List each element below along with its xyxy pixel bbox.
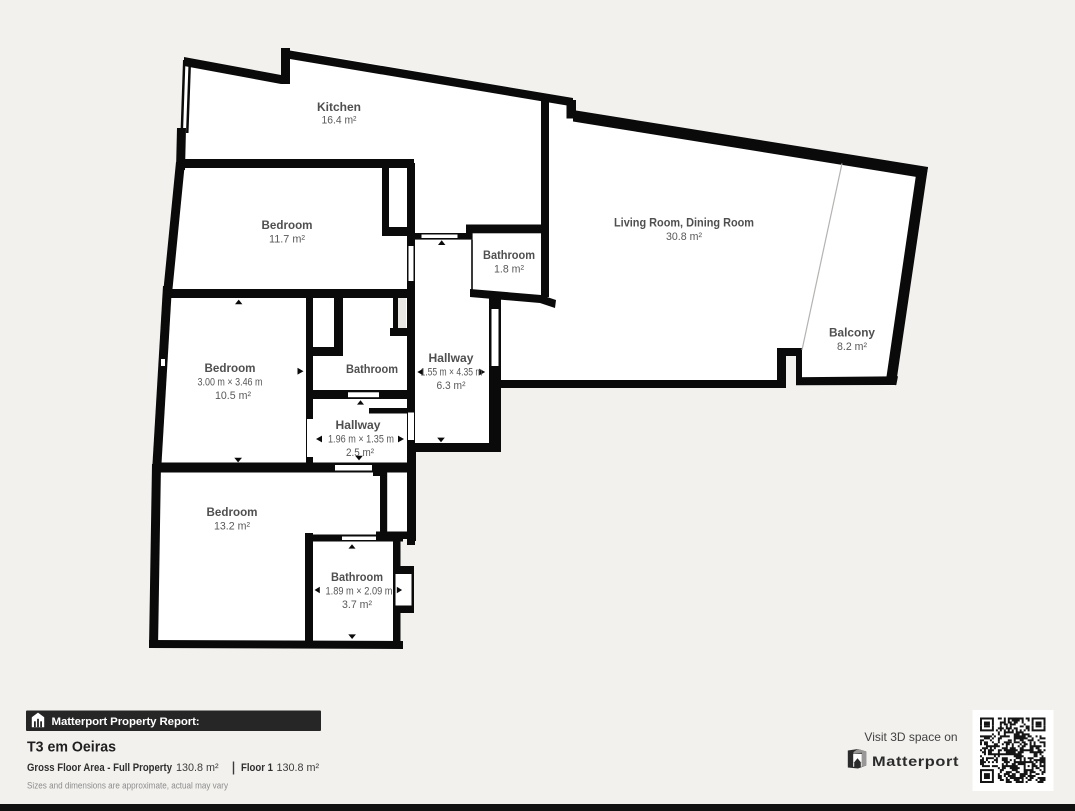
svg-text:8.2 m²: 8.2 m² [837,341,867,353]
svg-text:Bedroom: Bedroom [262,218,313,232]
svg-text:T3 em Oeiras: T3 em Oeiras [27,740,116,756]
svg-text:Bathroom: Bathroom [483,248,535,262]
svg-text:2.5 m²: 2.5 m² [346,447,374,459]
svg-text:Bathroom: Bathroom [331,570,383,584]
svg-text:Bathroom: Bathroom [346,362,398,376]
svg-text:Bedroom: Bedroom [207,505,258,519]
svg-text:10.5 m²: 10.5 m² [215,390,251,402]
svg-text:Balcony: Balcony [829,326,875,340]
svg-text:130.8 m²: 130.8 m² [176,762,219,774]
svg-text:1.89 m × 2.09 m: 1.89 m × 2.09 m [326,586,393,598]
svg-text:Kitchen: Kitchen [317,100,361,114]
svg-text:Living Room, Dining Room: Living Room, Dining Room [614,216,754,230]
svg-text:11.7 m²: 11.7 m² [269,234,305,246]
svg-text:3.00 m × 3.46 m: 3.00 m × 3.46 m [198,377,263,389]
svg-text:Visit 3D space on: Visit 3D space on [864,730,957,744]
svg-text:1.55 m × 4.35 m: 1.55 m × 4.35 m [421,367,483,379]
svg-text:30.8 m²: 30.8 m² [666,231,702,243]
svg-text:6.3 m²: 6.3 m² [437,380,466,392]
svg-text:13.2 m²: 13.2 m² [214,521,250,533]
svg-text:Matterport: Matterport [872,754,959,769]
svg-text:130.8 m²: 130.8 m² [277,762,320,774]
svg-text:Floor 1: Floor 1 [241,762,273,774]
svg-text:Hallway: Hallway [429,351,474,365]
svg-text:3.7 m²: 3.7 m² [342,599,372,611]
svg-text:Sizes and dimensions are appro: Sizes and dimensions are approximate, ac… [27,781,229,791]
svg-text:Hallway: Hallway [336,418,381,432]
svg-text:Bedroom: Bedroom [205,361,256,375]
svg-text:1.8 m²: 1.8 m² [494,264,524,276]
svg-text:Gross Floor Area - Full Proper: Gross Floor Area - Full Property [27,762,172,774]
svg-text:16.4 m²: 16.4 m² [322,115,357,127]
svg-text:Matterport Property Report:: Matterport Property Report: [52,716,200,728]
svg-text:1.96 m × 1.35 m: 1.96 m × 1.35 m [328,434,394,446]
